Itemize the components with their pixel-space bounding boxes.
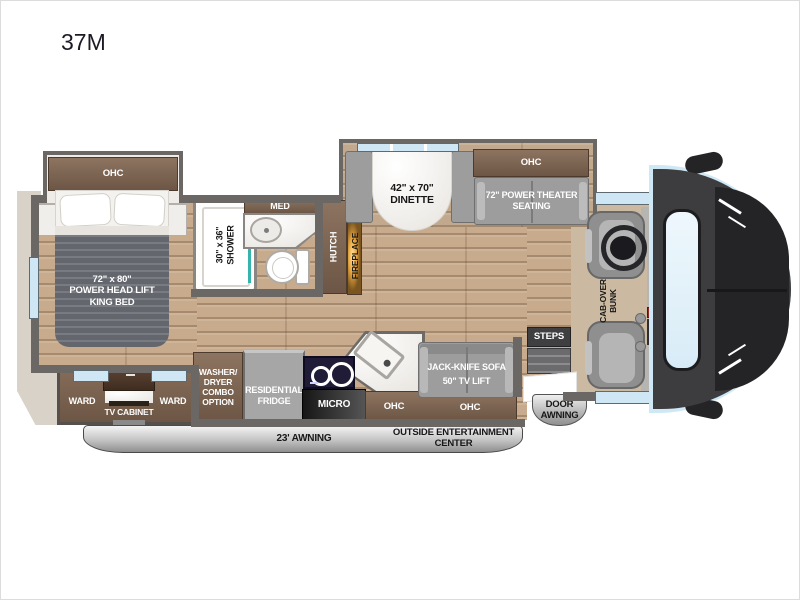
microwave: MICRO [302, 389, 366, 421]
shower-label: 30" x 36" SHOWER [214, 225, 235, 264]
passenger-seat-cushion [599, 333, 635, 383]
nightstand-right [168, 204, 187, 236]
bed-size-label: 72" x 80" [93, 274, 132, 285]
theater-label-line1: 72" POWER THEATER [486, 190, 578, 201]
fireplace: FIREPLACE [347, 217, 362, 295]
cooktop-burner-large [329, 362, 354, 387]
entry-steps-treads [527, 348, 571, 374]
passenger-seat-armrest [585, 341, 592, 375]
cabover-bunk-label: CAB-OVER BUNK [598, 279, 618, 323]
theater-armrest-left [477, 182, 485, 220]
kitchen-faucet [382, 358, 392, 368]
fridge-label-1: RESIDENTIAL [245, 385, 303, 396]
ward-left-label: WARD [61, 396, 103, 407]
cooktop-controls [310, 382, 318, 384]
bathroom-right-wall [315, 198, 323, 297]
hutch: HUTCH [321, 200, 347, 294]
toilet-seat [272, 257, 294, 279]
ward-right-label: WARD [153, 396, 193, 407]
bathroom-bottom-wall [191, 289, 323, 297]
bedroom-ohc-label: OHC [103, 168, 124, 179]
theater-overhead-cabinet: OHC [473, 149, 589, 177]
micro-label: MICRO [318, 399, 350, 411]
cab-window-bottom [595, 391, 655, 404]
sofa-ohc-label: OHC [450, 402, 490, 413]
kitchen-ohc-label: OHC [374, 401, 414, 412]
bed-blanket: 72" x 80" POWER HEAD LIFT KING BED [55, 235, 169, 347]
theater-seating: 72" POWER THEATER SEATING [474, 177, 589, 225]
residential-fridge: RESIDENTIAL FRIDGE [243, 350, 305, 422]
awning-length-label: 23' AWNING [234, 433, 374, 445]
bed-pillow-right [113, 193, 166, 228]
tv-lift-label: 50" TV LIFT [443, 376, 491, 387]
driver-seat-armrest [585, 229, 592, 263]
dinette-table: 42" x 70" DINETTE [372, 149, 452, 231]
wardrobe-window-left [73, 370, 109, 382]
cooktop [303, 356, 355, 389]
steering-wheel-hub [610, 236, 636, 260]
bedroom-overhead-cabinet: OHC [48, 157, 178, 191]
dinette-window [357, 143, 459, 152]
outside-label-line1: OUTSIDE ENTERTAINMENT [386, 427, 521, 438]
washer-label-2: DRYER [204, 377, 232, 387]
tv-cabinet-handle [126, 374, 135, 376]
dinette-window-divider [390, 144, 393, 151]
fireplace-label: FIREPLACE [349, 233, 359, 279]
dinette-bench-left [345, 151, 373, 223]
entry-steps-sign: STEPS [527, 327, 571, 347]
sofa-label: JACK-KNIFE SOFA [427, 362, 506, 373]
entry-bottom-wall [563, 392, 595, 401]
king-bed: 72" x 80" POWER HEAD LIFT KING BED [55, 190, 169, 347]
kitchen-bottom-wall [191, 419, 525, 427]
sofa-right-wall-stub [513, 337, 522, 397]
washer-dryer-combo: WASHER/ DRYER COMBO OPTION [193, 352, 243, 422]
washer-label-4: OPTION [202, 397, 233, 407]
toilet [265, 248, 311, 286]
console-knob-1 [635, 313, 646, 324]
bed-pillow-left [59, 193, 112, 228]
sofa-armrest-right [505, 347, 513, 393]
page-title: 37M [61, 29, 106, 56]
dinette-size-label: 42" x 70" [390, 182, 433, 194]
dinette-label: DINETTE [390, 194, 434, 206]
wardrobe-window-right [151, 370, 187, 382]
console-knob-2 [635, 341, 646, 352]
dinette-window-divider2 [424, 144, 427, 151]
cab-window-top [595, 192, 655, 205]
door-awning-label-2: AWNING [541, 410, 579, 421]
bath-sink-drain [264, 228, 269, 233]
nightstand-left [37, 204, 56, 236]
floorplan-canvas: 37M OHC 72" x 80" POWER HEAD LIFT KING B… [0, 0, 800, 600]
front-cap-seam [707, 289, 787, 292]
windshield [663, 209, 701, 371]
fridge-label-2: FRIDGE [258, 396, 291, 407]
washer-label-3: COMBO [202, 387, 234, 397]
rear-window [29, 257, 39, 319]
hutch-label: HUTCH [329, 232, 340, 263]
cabover-bunk-label-wrap: CAB-OVER BUNK [593, 263, 623, 339]
theater-ohc-label: OHC [521, 157, 542, 168]
outside-label-line2: CENTER [386, 438, 521, 449]
bed-feature-label: POWER HEAD LIFT [69, 285, 154, 296]
tv-cabinet-label: TV CABINET [99, 407, 159, 417]
tv-slot [109, 401, 149, 406]
bath-sink [250, 217, 282, 243]
bed-type-label: KING BED [90, 297, 135, 308]
theater-armrest-right [579, 182, 587, 220]
jackknife-sofa: JACK-KNIFE SOFA 50" TV LIFT [418, 342, 515, 398]
washer-label-1: WASHER/ [199, 367, 237, 377]
steps-label: STEPS [534, 331, 564, 342]
bedroom-kitchen-jog-wall [191, 365, 199, 425]
outside-entertainment-label: OUTSIDE ENTERTAINMENT CENTER [386, 427, 521, 449]
theater-label-line2: SEATING [513, 201, 551, 212]
